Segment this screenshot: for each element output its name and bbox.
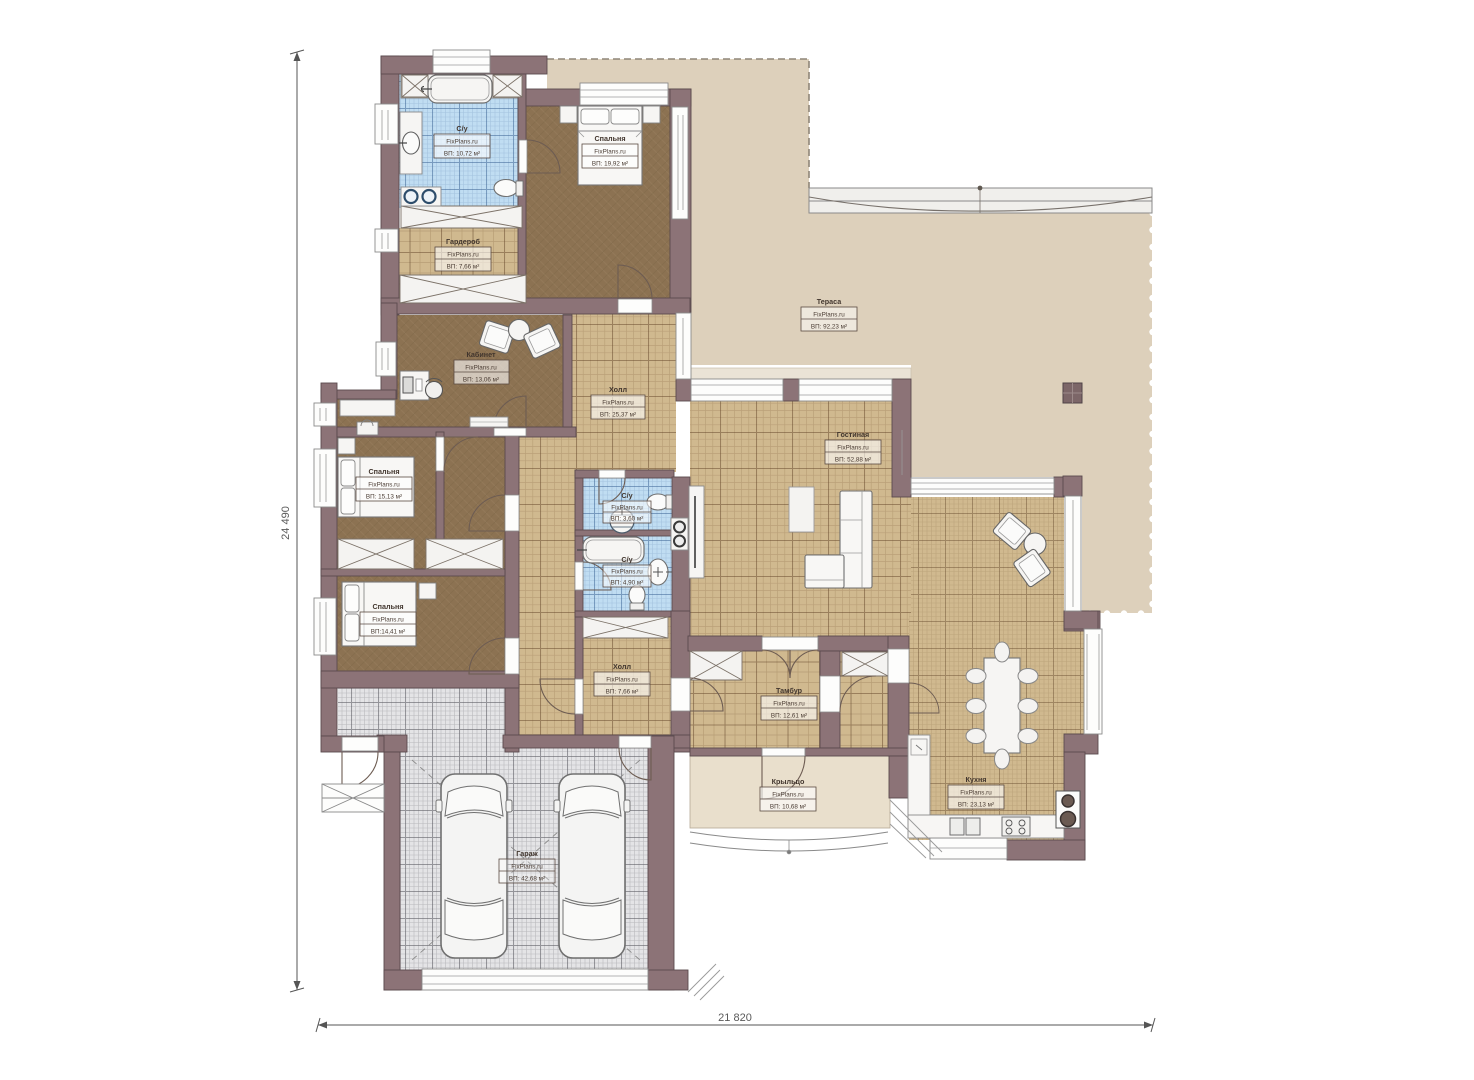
svg-text:FixPlans.ru: FixPlans.ru	[813, 312, 845, 319]
svg-text:FixPlans.ru: FixPlans.ru	[602, 400, 634, 407]
svg-text:FixPlans.ru: FixPlans.ru	[446, 139, 478, 146]
svg-text:FixPlans.ru: FixPlans.ru	[372, 617, 404, 624]
svg-text:Гараж: Гараж	[516, 849, 538, 858]
svg-text:Спальня: Спальня	[594, 134, 625, 143]
svg-text:ВП: 12,61 м²: ВП: 12,61 м²	[771, 713, 807, 720]
svg-text:ВП: 7,66 м²: ВП: 7,66 м²	[447, 264, 480, 271]
svg-text:С/у: С/у	[621, 555, 632, 564]
svg-text:Кабинет: Кабинет	[466, 350, 496, 359]
svg-text:ВП: 15,13 м²: ВП: 15,13 м²	[366, 494, 402, 501]
svg-text:FixPlans.ru: FixPlans.ru	[773, 701, 805, 708]
svg-text:ВП: 4,90 м²: ВП: 4,90 м²	[611, 580, 644, 587]
svg-text:Холл: Холл	[613, 662, 631, 671]
svg-text:FixPlans.ru: FixPlans.ru	[611, 505, 643, 512]
svg-text:Кухня: Кухня	[965, 775, 986, 784]
svg-text:FixPlans.ru: FixPlans.ru	[611, 569, 643, 576]
svg-text:Спальня: Спальня	[368, 467, 399, 476]
svg-text:FixPlans.ru: FixPlans.ru	[447, 252, 479, 259]
svg-text:ВП: 13,06 м²: ВП: 13,06 м²	[463, 377, 499, 384]
svg-text:ВП: 3,60 м²: ВП: 3,60 м²	[611, 516, 644, 523]
svg-text:FixPlans.ru: FixPlans.ru	[465, 365, 497, 372]
svg-text:Холл: Холл	[609, 385, 627, 394]
svg-text:ВП: 10,72 м²: ВП: 10,72 м²	[444, 151, 480, 158]
svg-text:Гостиная: Гостиная	[837, 430, 869, 439]
svg-text:21 820: 21 820	[718, 1012, 752, 1024]
svg-text:ВП: 42,68 м²: ВП: 42,68 м²	[509, 876, 545, 883]
svg-text:FixPlans.ru: FixPlans.ru	[772, 792, 804, 799]
svg-text:ВП: 23,13 м²: ВП: 23,13 м²	[958, 802, 994, 809]
svg-text:ВП: 19,92 м²: ВП: 19,92 м²	[592, 161, 628, 168]
svg-text:ВП: 7,66 м²: ВП: 7,66 м²	[606, 689, 639, 696]
svg-text:Тамбур: Тамбур	[776, 686, 803, 695]
svg-text:С/у: С/у	[456, 124, 467, 133]
svg-text:24 490: 24 490	[280, 506, 292, 540]
svg-text:Гардероб: Гардероб	[446, 237, 481, 246]
svg-text:ВП: 25,37 м²: ВП: 25,37 м²	[600, 412, 636, 419]
svg-text:Тераса: Тераса	[817, 297, 843, 306]
svg-text:FixPlans.ru: FixPlans.ru	[511, 864, 543, 871]
svg-text:Спальня: Спальня	[372, 602, 403, 611]
svg-text:FixPlans.ru: FixPlans.ru	[837, 445, 869, 452]
svg-text:ВП: 52,88 м²: ВП: 52,88 м²	[835, 457, 871, 464]
svg-text:FixPlans.ru: FixPlans.ru	[960, 790, 992, 797]
svg-text:FixPlans.ru: FixPlans.ru	[368, 482, 400, 489]
svg-text:ВП: 92,23 м²: ВП: 92,23 м²	[811, 324, 847, 331]
svg-text:FixPlans.ru: FixPlans.ru	[594, 149, 626, 156]
svg-text:Крыльцо: Крыльцо	[772, 777, 805, 786]
svg-text:ВП:14,41 м²: ВП:14,41 м²	[371, 629, 405, 636]
svg-text:ВП: 10,68 м²: ВП: 10,68 м²	[770, 804, 806, 811]
svg-text:С/у: С/у	[621, 491, 632, 500]
svg-text:FixPlans.ru: FixPlans.ru	[606, 677, 638, 684]
